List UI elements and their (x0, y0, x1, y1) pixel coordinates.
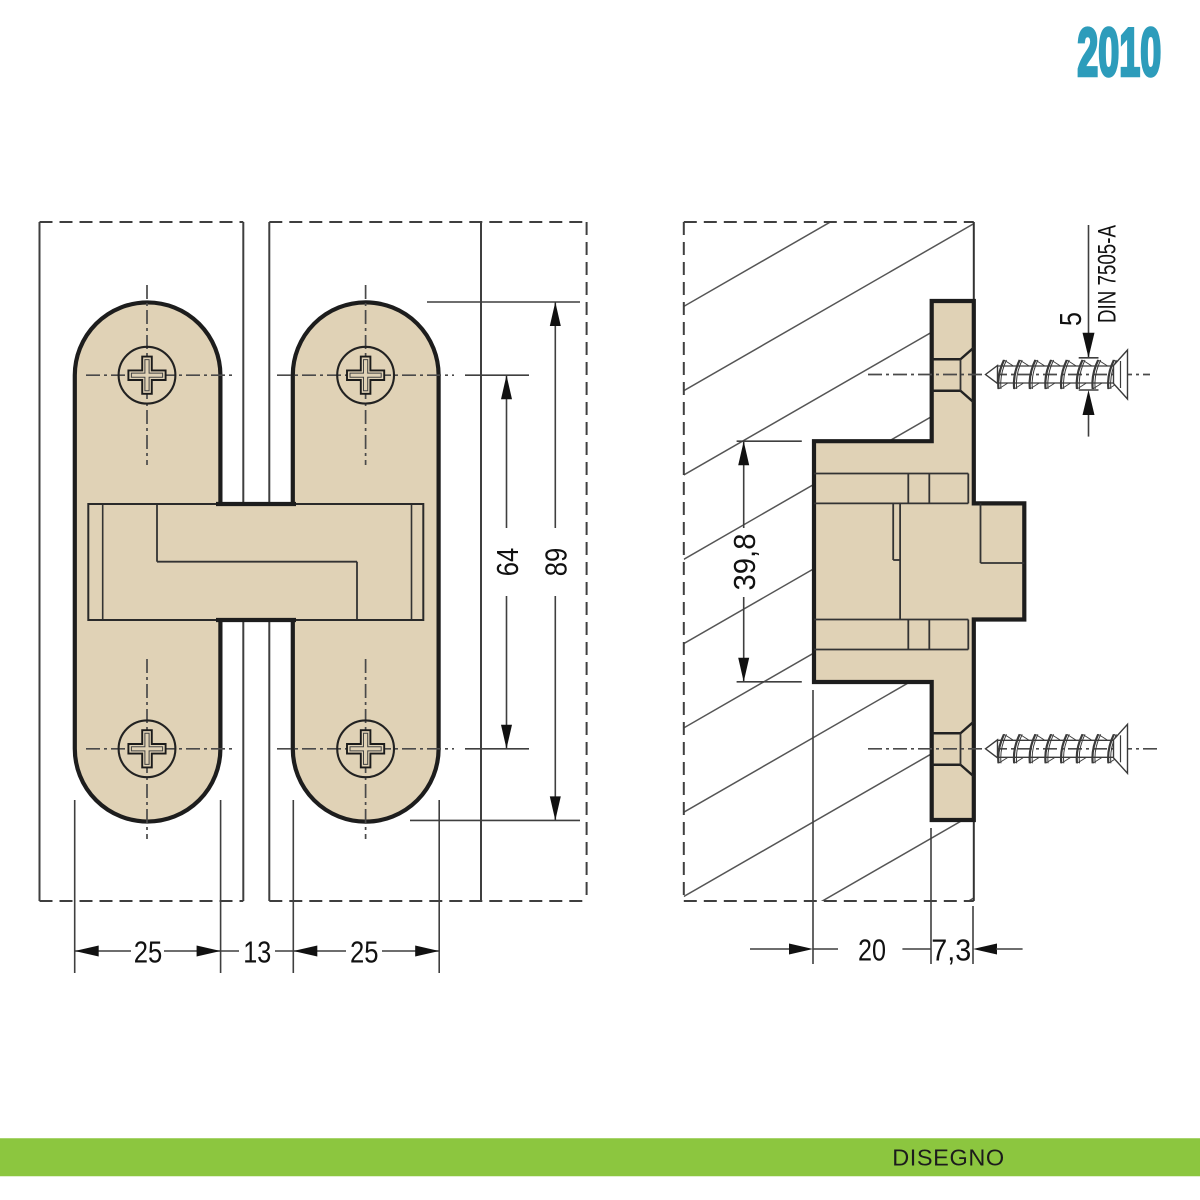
svg-text:13: 13 (243, 934, 271, 969)
svg-text:7,3: 7,3 (931, 932, 971, 967)
svg-text:25: 25 (350, 934, 379, 969)
svg-text:5: 5 (1053, 312, 1088, 326)
svg-text:25: 25 (134, 934, 163, 969)
svg-text:20: 20 (858, 932, 886, 967)
svg-text:DIN 7505-A: DIN 7505-A (1094, 225, 1122, 323)
svg-text:64: 64 (490, 548, 525, 577)
svg-text:DISEGNO: DISEGNO (892, 1145, 1005, 1171)
svg-text:89: 89 (539, 548, 574, 577)
svg-text:39,8: 39,8 (727, 534, 762, 591)
svg-text:2010: 2010 (1077, 15, 1161, 91)
